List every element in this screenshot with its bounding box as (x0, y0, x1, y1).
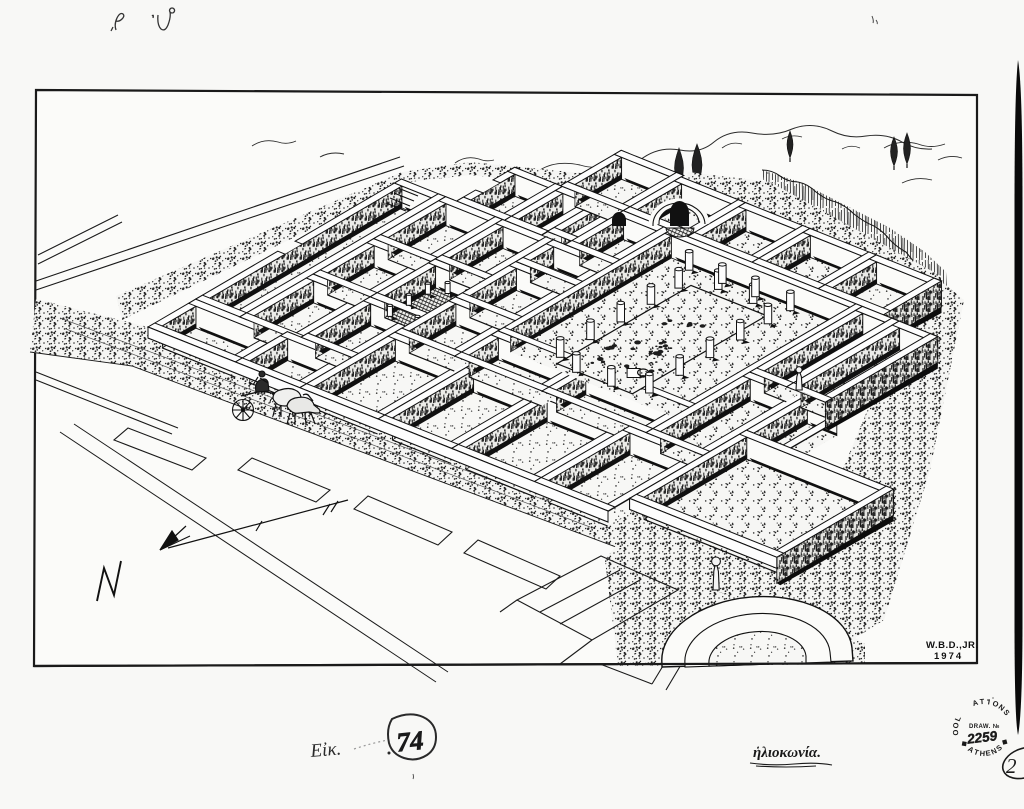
svg-text:2: 2 (1006, 754, 1017, 778)
svg-text:ἡλιοκωνία.: ἡλιοκωνία. (753, 745, 821, 761)
svg-text:Eἰκ.: Eἰκ. (309, 738, 342, 762)
svg-text:O: O (951, 729, 960, 736)
svg-text:74: 74 (395, 725, 425, 758)
svg-text:W.B.D.,JR.: W.B.D.,JR. (926, 640, 979, 651)
svg-text:1974: 1974 (934, 651, 963, 662)
